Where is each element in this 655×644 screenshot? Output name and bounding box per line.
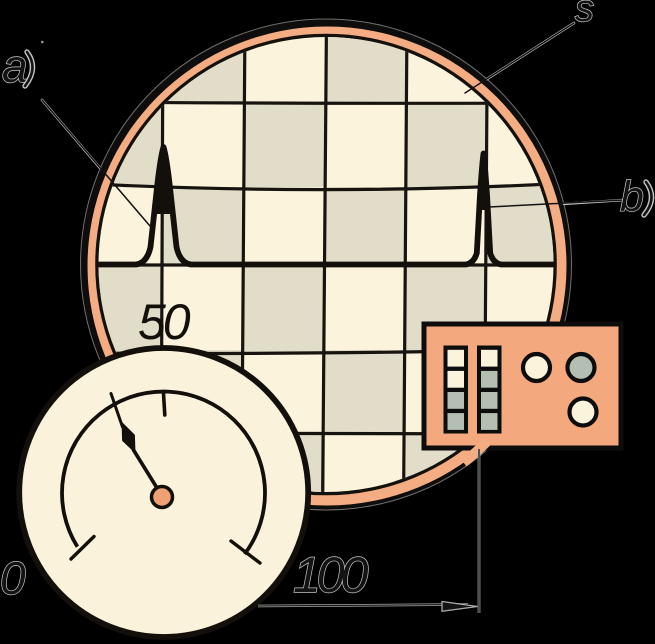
svg-text:b: b	[620, 173, 644, 221]
svg-text:100: 100	[293, 547, 369, 603]
svg-text:s: s	[575, 0, 594, 30]
svg-text:50: 50	[138, 294, 191, 350]
svg-text:0: 0	[0, 552, 26, 604]
